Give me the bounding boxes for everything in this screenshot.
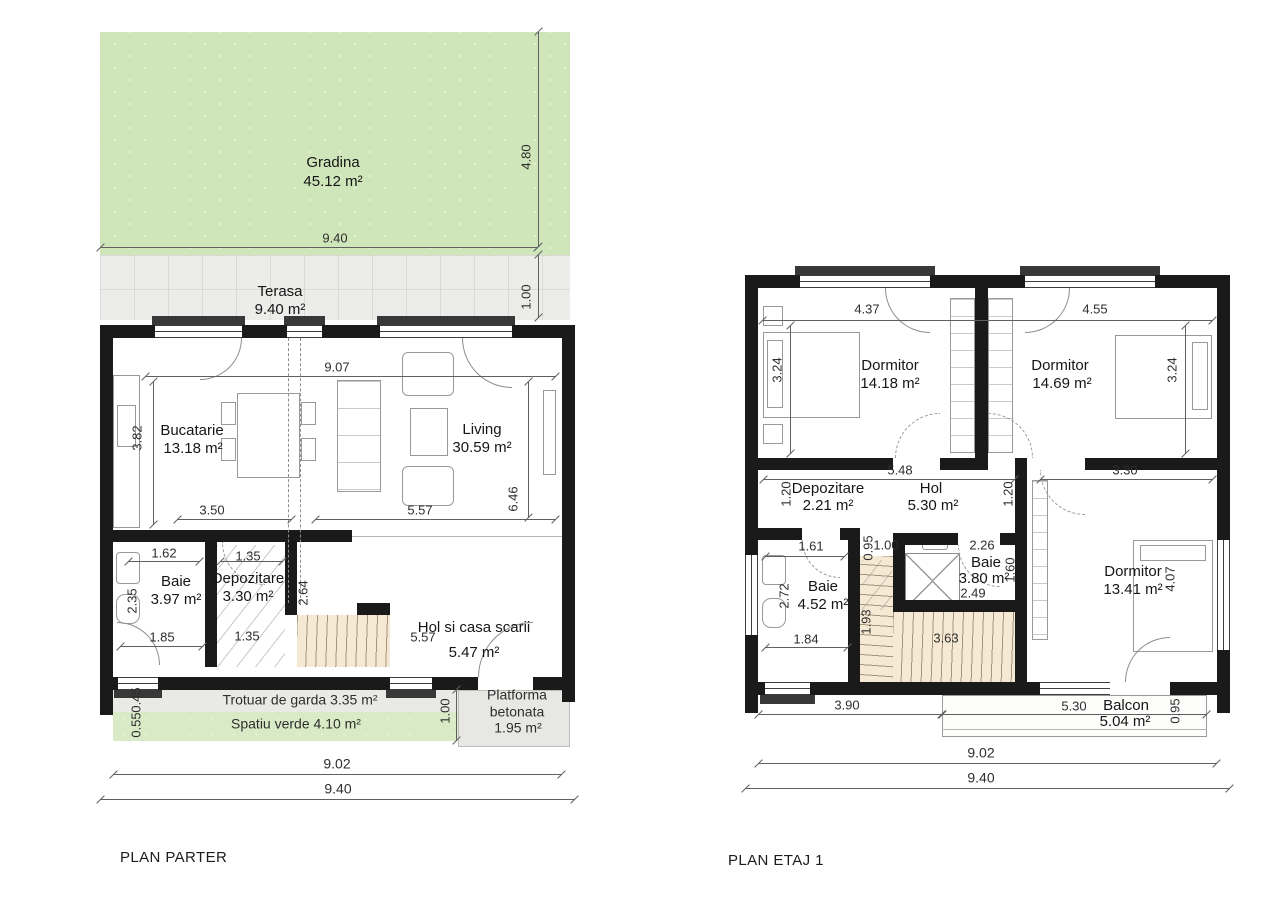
wall: [745, 695, 758, 713]
interior-wall: [893, 600, 1015, 612]
armchair: [402, 352, 454, 396]
room-area-bucatarie: 13.18 m²: [163, 440, 222, 458]
interior-wall: [893, 533, 958, 545]
dim-label: 3.50: [199, 502, 224, 517]
room-label-depozitare-etaj: Depozitare: [792, 480, 865, 498]
interior-wall: [357, 603, 390, 615]
stairs: [297, 615, 390, 667]
dim-label: 1.61: [798, 538, 823, 553]
room-label-baie1-etaj: Baie: [808, 578, 838, 596]
dim-line: [128, 561, 200, 562]
room-area-platforma: 1.95 m²: [494, 720, 541, 737]
dim-line: [762, 320, 1213, 321]
room-area-dormitor3: 13.41 m²: [1103, 581, 1162, 599]
dim-line: [528, 382, 529, 518]
armchair: [402, 466, 454, 506]
dim-line: [120, 646, 203, 647]
door-swing: [1125, 637, 1170, 682]
interior-wall: [840, 528, 860, 540]
dim-label: 2.72: [777, 583, 792, 608]
dim-line: [765, 647, 848, 648]
dim-line: [538, 255, 539, 318]
dim-label: 4.07: [1163, 566, 1178, 591]
window: [390, 677, 432, 690]
stairs-dashed: [862, 560, 892, 610]
dim-label: 5.57: [410, 629, 435, 644]
window: [155, 325, 242, 338]
room-label-dormitor2: Dormitor: [1031, 357, 1089, 375]
dim-label: 3.30: [1112, 462, 1137, 477]
door-swing-dashed: [895, 413, 940, 458]
dim-label: 1.85: [149, 629, 174, 644]
interior-wall: [205, 542, 217, 667]
dim-label: 4.37: [854, 301, 879, 316]
wall: [1217, 695, 1230, 713]
dim-label: 4.55: [1082, 301, 1107, 316]
window: [1025, 275, 1155, 288]
dim-line: [315, 519, 556, 520]
room-label-platforma: Platforma betonata: [470, 686, 565, 719]
interior-wall: [758, 458, 893, 470]
room-label-living: Living: [462, 421, 501, 439]
room-label-baie: Baie: [161, 573, 191, 591]
interior-wall: [1000, 533, 1015, 545]
interior-wall: [975, 288, 988, 458]
terrace-zone: [100, 255, 570, 320]
dim-label: 1.93: [859, 609, 874, 634]
dim-label: 6.46: [506, 486, 521, 511]
chair: [221, 438, 236, 461]
dim-label: 4.80: [519, 144, 534, 169]
nightstand: [763, 424, 783, 444]
dim-label: 1.00: [438, 698, 453, 723]
window-sill: [795, 266, 935, 275]
door-swing: [200, 338, 242, 380]
bathroom-sink: [116, 552, 140, 584]
window: [765, 682, 810, 695]
dim-label: 1.20: [779, 481, 794, 506]
dim-line: [765, 556, 845, 557]
dim-label: 3.90: [834, 697, 859, 712]
room-label-gradina: Gradina: [306, 154, 359, 172]
dim-label: 0.95: [1168, 698, 1183, 723]
dim-line: [456, 690, 457, 741]
dim-label: 1.20: [1001, 481, 1016, 506]
dim-label: 5.30: [1061, 698, 1086, 713]
dim-label: 2.49: [960, 585, 985, 600]
floorplan-sheet: Gradina 45.12 m² Terasa 9.40 m² Bucatari…: [0, 0, 1288, 904]
room-area-balcon: 5.04 m²: [1100, 713, 1151, 731]
window-sill: [386, 690, 436, 698]
chair: [301, 438, 316, 461]
label-trotuar: Trotuar de garda 3.35 m²: [222, 692, 377, 709]
window: [745, 555, 758, 635]
door-swing-dashed: [988, 413, 1033, 458]
window: [1217, 540, 1230, 650]
open-plan-divider: [288, 338, 289, 603]
kitchen-counter: [113, 375, 140, 528]
plan-title-etaj: PLAN ETAJ 1: [728, 852, 824, 869]
room-area-depozitare: 3.30 m²: [223, 588, 274, 606]
dim-label: 9.02: [967, 745, 994, 762]
dim-label: 2.35: [125, 588, 140, 613]
dim-line: [145, 376, 556, 377]
room-area-depozitare-etaj: 2.21 m²: [803, 497, 854, 515]
window-sill: [760, 695, 815, 704]
dim-label: 3.63: [933, 630, 958, 645]
room-area-terasa: 9.40 m²: [255, 301, 306, 319]
dim-label: 5.48: [887, 462, 912, 477]
window: [287, 325, 322, 338]
balcony-rail-line: [942, 729, 1207, 730]
dim-line: [100, 799, 575, 800]
dim-line: [1040, 479, 1213, 480]
dim-label: 1.00: [519, 284, 534, 309]
room-area-gradina: 45.12 m²: [303, 173, 362, 191]
window-sill: [377, 316, 515, 325]
room-area-baie: 3.97 m²: [151, 591, 202, 609]
wall: [562, 325, 575, 690]
room-label-terasa: Terasa: [257, 283, 302, 301]
pillow: [1192, 342, 1208, 410]
interior-wall: [940, 458, 988, 470]
dim-line: [790, 326, 791, 454]
interior-wall: [893, 545, 905, 600]
wardrobe: [950, 298, 975, 453]
window-sill: [1020, 266, 1160, 275]
dim-line: [177, 519, 292, 520]
dim-label: 9.40: [967, 770, 994, 787]
dim-line: [758, 714, 942, 715]
wardrobe: [1032, 480, 1048, 640]
dim-label: 1.35: [235, 548, 260, 563]
coffee-table: [410, 408, 448, 456]
dim-label: 3.24: [1165, 357, 1180, 382]
dim-label: 3.24: [770, 357, 785, 382]
open-plan-divider: [300, 338, 301, 603]
room-area-baie1-etaj: 4.52 m²: [798, 596, 849, 614]
dim-label: 1.00: [873, 537, 898, 552]
dim-line: [100, 247, 538, 248]
room-label-depozitare: Depozitare: [212, 570, 285, 588]
garden-zone: [100, 32, 570, 255]
bathroom-sink: [762, 555, 786, 585]
dim-label: 9.40: [322, 230, 347, 245]
window: [800, 275, 930, 288]
sofa: [337, 380, 381, 492]
dim-label: 0.45: [129, 687, 144, 712]
room-area-hol-etaj: 5.30 m²: [908, 497, 959, 515]
room-label-bucatarie: Bucatarie: [160, 422, 223, 440]
dim-label: 1.35: [234, 628, 259, 643]
dim-label: 0.55: [129, 712, 144, 737]
dim-line: [153, 382, 154, 525]
wall: [100, 690, 113, 715]
dim-label: 9.40: [324, 781, 351, 798]
dim-label: 3.82: [130, 425, 145, 450]
dim-label: 1.84: [793, 631, 818, 646]
dim-line: [1185, 326, 1186, 454]
wall: [100, 325, 113, 690]
interior-wall: [1085, 458, 1217, 470]
dim-label: 1.62: [151, 545, 176, 560]
floor-line: [352, 536, 562, 537]
dim-line: [758, 763, 1217, 764]
dim-label: 2.26: [969, 537, 994, 552]
door-swing: [885, 288, 930, 333]
dim-label: 9.07: [324, 359, 349, 374]
dim-line: [113, 774, 562, 775]
dining-table: [237, 393, 300, 478]
dim-label: 5.57: [407, 502, 432, 517]
window: [380, 325, 512, 338]
room-area-living: 30.59 m²: [452, 439, 511, 457]
dim-label: 2.64: [296, 580, 311, 605]
room-area-hol-scara: 5.47 m²: [449, 644, 500, 662]
room-label-hol-etaj: Hol: [920, 480, 943, 498]
plan-title-parter: PLAN PARTER: [120, 849, 227, 866]
pillow: [1140, 545, 1206, 561]
door-swing: [1025, 288, 1070, 333]
room-area-dormitor1: 14.18 m²: [860, 375, 919, 393]
dim-line: [538, 32, 539, 247]
door-opening: [1110, 682, 1170, 695]
room-label-dormitor1: Dormitor: [861, 357, 919, 375]
label-spatiu-verde: Spatiu verde 4.10 m²: [231, 716, 361, 733]
door-swing: [462, 338, 512, 388]
room-area-dormitor2: 14.69 m²: [1032, 375, 1091, 393]
window: [1040, 682, 1110, 695]
interior-wall: [758, 528, 802, 540]
chair: [301, 402, 316, 425]
window-sill: [152, 316, 245, 325]
dim-label: 1.60: [1003, 557, 1018, 582]
room-label-dormitor3: Dormitor: [1104, 563, 1162, 581]
stairs-flight-horizontal: [893, 612, 1015, 682]
tv-unit: [543, 390, 556, 475]
dim-label: 9.02: [323, 756, 350, 773]
interior-wall: [113, 530, 352, 542]
dim-line: [745, 788, 1230, 789]
